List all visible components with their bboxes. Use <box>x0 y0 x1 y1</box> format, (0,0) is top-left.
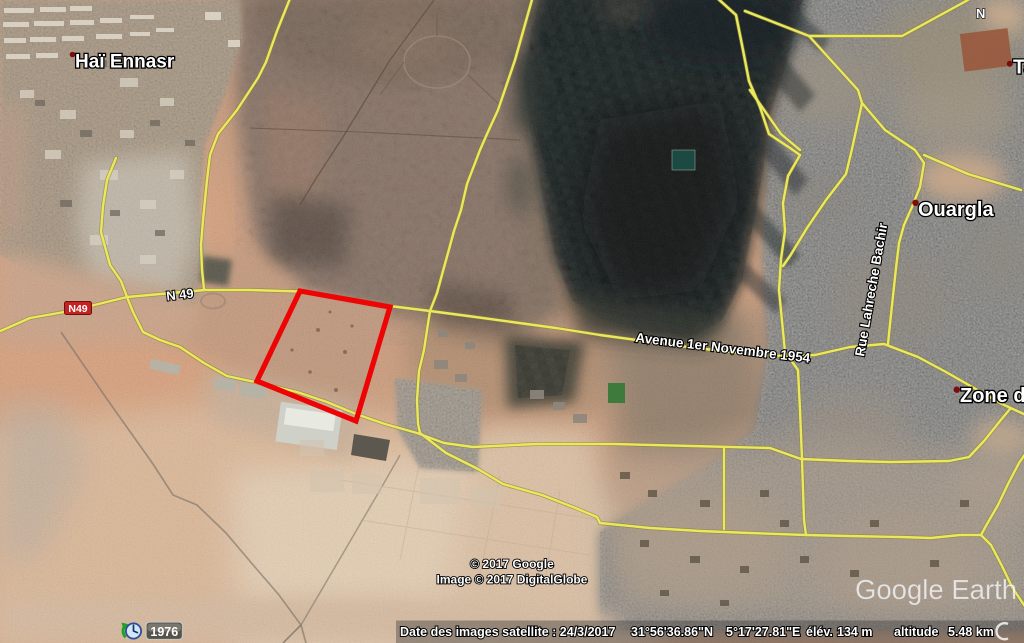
svg-text:31°56'36.86"N: 31°56'36.86"N <box>631 625 713 639</box>
svg-text:Ouargla: Ouargla <box>918 199 994 221</box>
svg-text:altitude: altitude <box>894 625 938 639</box>
svg-text:élév.: élév. <box>806 625 833 639</box>
svg-text:134 m: 134 m <box>837 625 872 639</box>
svg-text:Google Earth: Google Earth <box>855 574 1017 605</box>
svg-text:N: N <box>976 6 985 21</box>
svg-text:5°17'27.81"E: 5°17'27.81"E <box>726 625 800 639</box>
svg-text:© 2017 Google: © 2017 Google <box>470 557 554 571</box>
svg-text:1976: 1976 <box>150 625 178 639</box>
svg-text:N49: N49 <box>68 303 87 315</box>
svg-text:5.48 km: 5.48 km <box>948 625 994 639</box>
svg-text:Haï Ennasr: Haï Ennasr <box>75 52 175 73</box>
svg-text:Ta: Ta <box>1013 57 1024 79</box>
svg-text:Image © 2017 DigitalGlobe: Image © 2017 DigitalGlobe <box>437 573 588 587</box>
svg-text:Zone d'I: Zone d'I <box>960 385 1024 407</box>
svg-text:Date des images satellite : 24: Date des images satellite : 24/3/2017 <box>400 625 615 639</box>
